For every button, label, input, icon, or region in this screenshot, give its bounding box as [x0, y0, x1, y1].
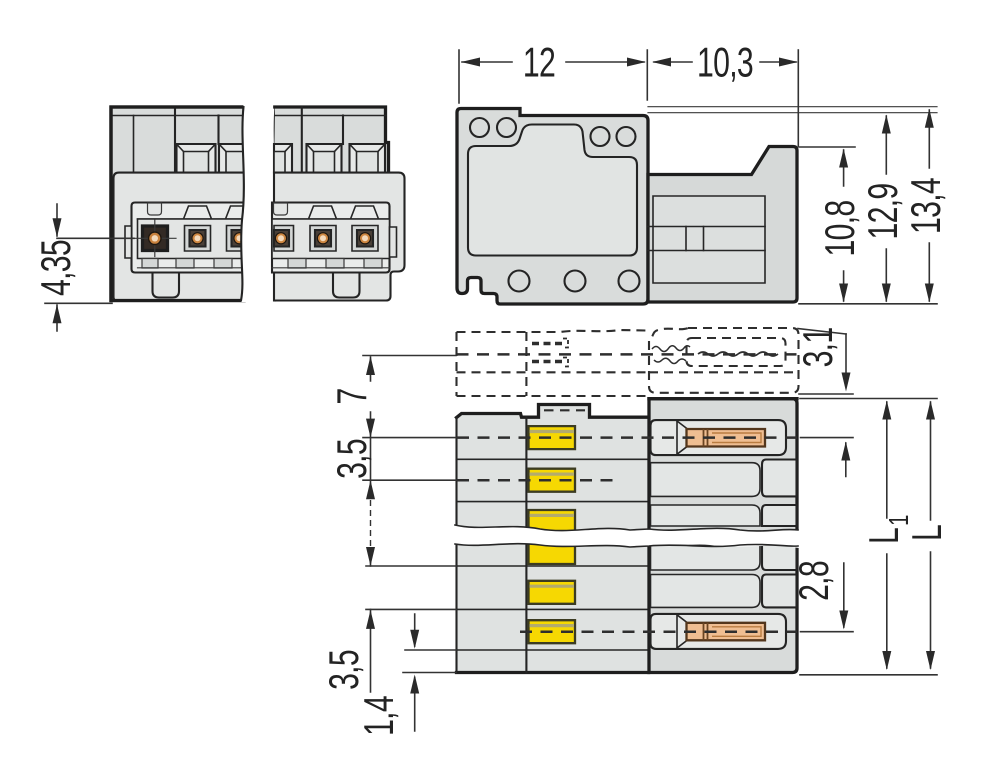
svg-text:13,4: 13,4 — [902, 178, 949, 234]
svg-text:2,8: 2,8 — [790, 561, 837, 601]
svg-text:4,35: 4,35 — [32, 240, 79, 296]
svg-text:1: 1 — [884, 515, 915, 526]
svg-text:3,5: 3,5 — [320, 650, 367, 690]
svg-text:7: 7 — [328, 388, 375, 404]
svg-text:12: 12 — [523, 39, 555, 86]
svg-text:3,5: 3,5 — [328, 439, 375, 479]
svg-text:10,8: 10,8 — [816, 201, 863, 257]
svg-text:3,1: 3,1 — [794, 328, 841, 368]
svg-text:12,9: 12,9 — [859, 184, 906, 240]
svg-text:10,3: 10,3 — [697, 39, 753, 86]
svg-text:L: L — [903, 525, 950, 542]
svg-text:1,4: 1,4 — [355, 696, 402, 736]
svg-text:L: L — [860, 528, 907, 545]
